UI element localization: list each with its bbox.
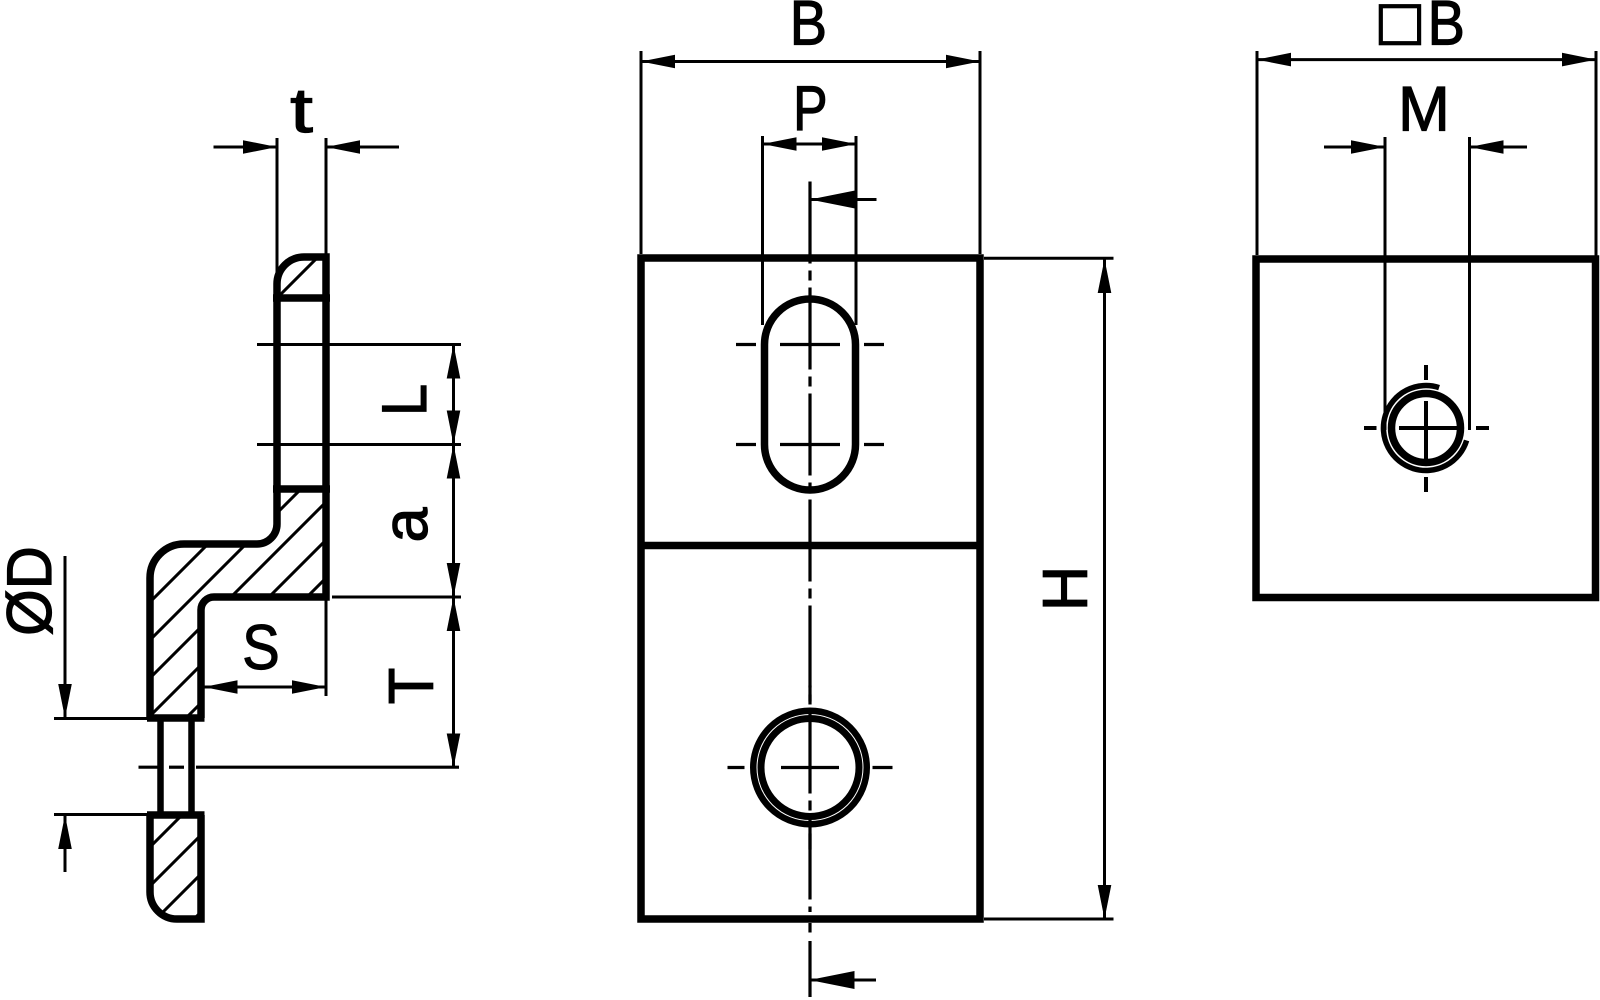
svg-text:H: H <box>1031 566 1101 612</box>
svg-text:B: B <box>1428 0 1465 58</box>
svg-text:T: T <box>376 668 447 705</box>
svg-text:P: P <box>793 74 827 144</box>
svg-text:ØD: ØD <box>0 546 65 636</box>
svg-text:a: a <box>371 507 441 543</box>
svg-text:B: B <box>790 0 827 58</box>
svg-text:S: S <box>242 612 279 683</box>
svg-text:L: L <box>369 384 440 416</box>
svg-text:t: t <box>290 76 313 146</box>
svg-text:M: M <box>1398 74 1450 145</box>
